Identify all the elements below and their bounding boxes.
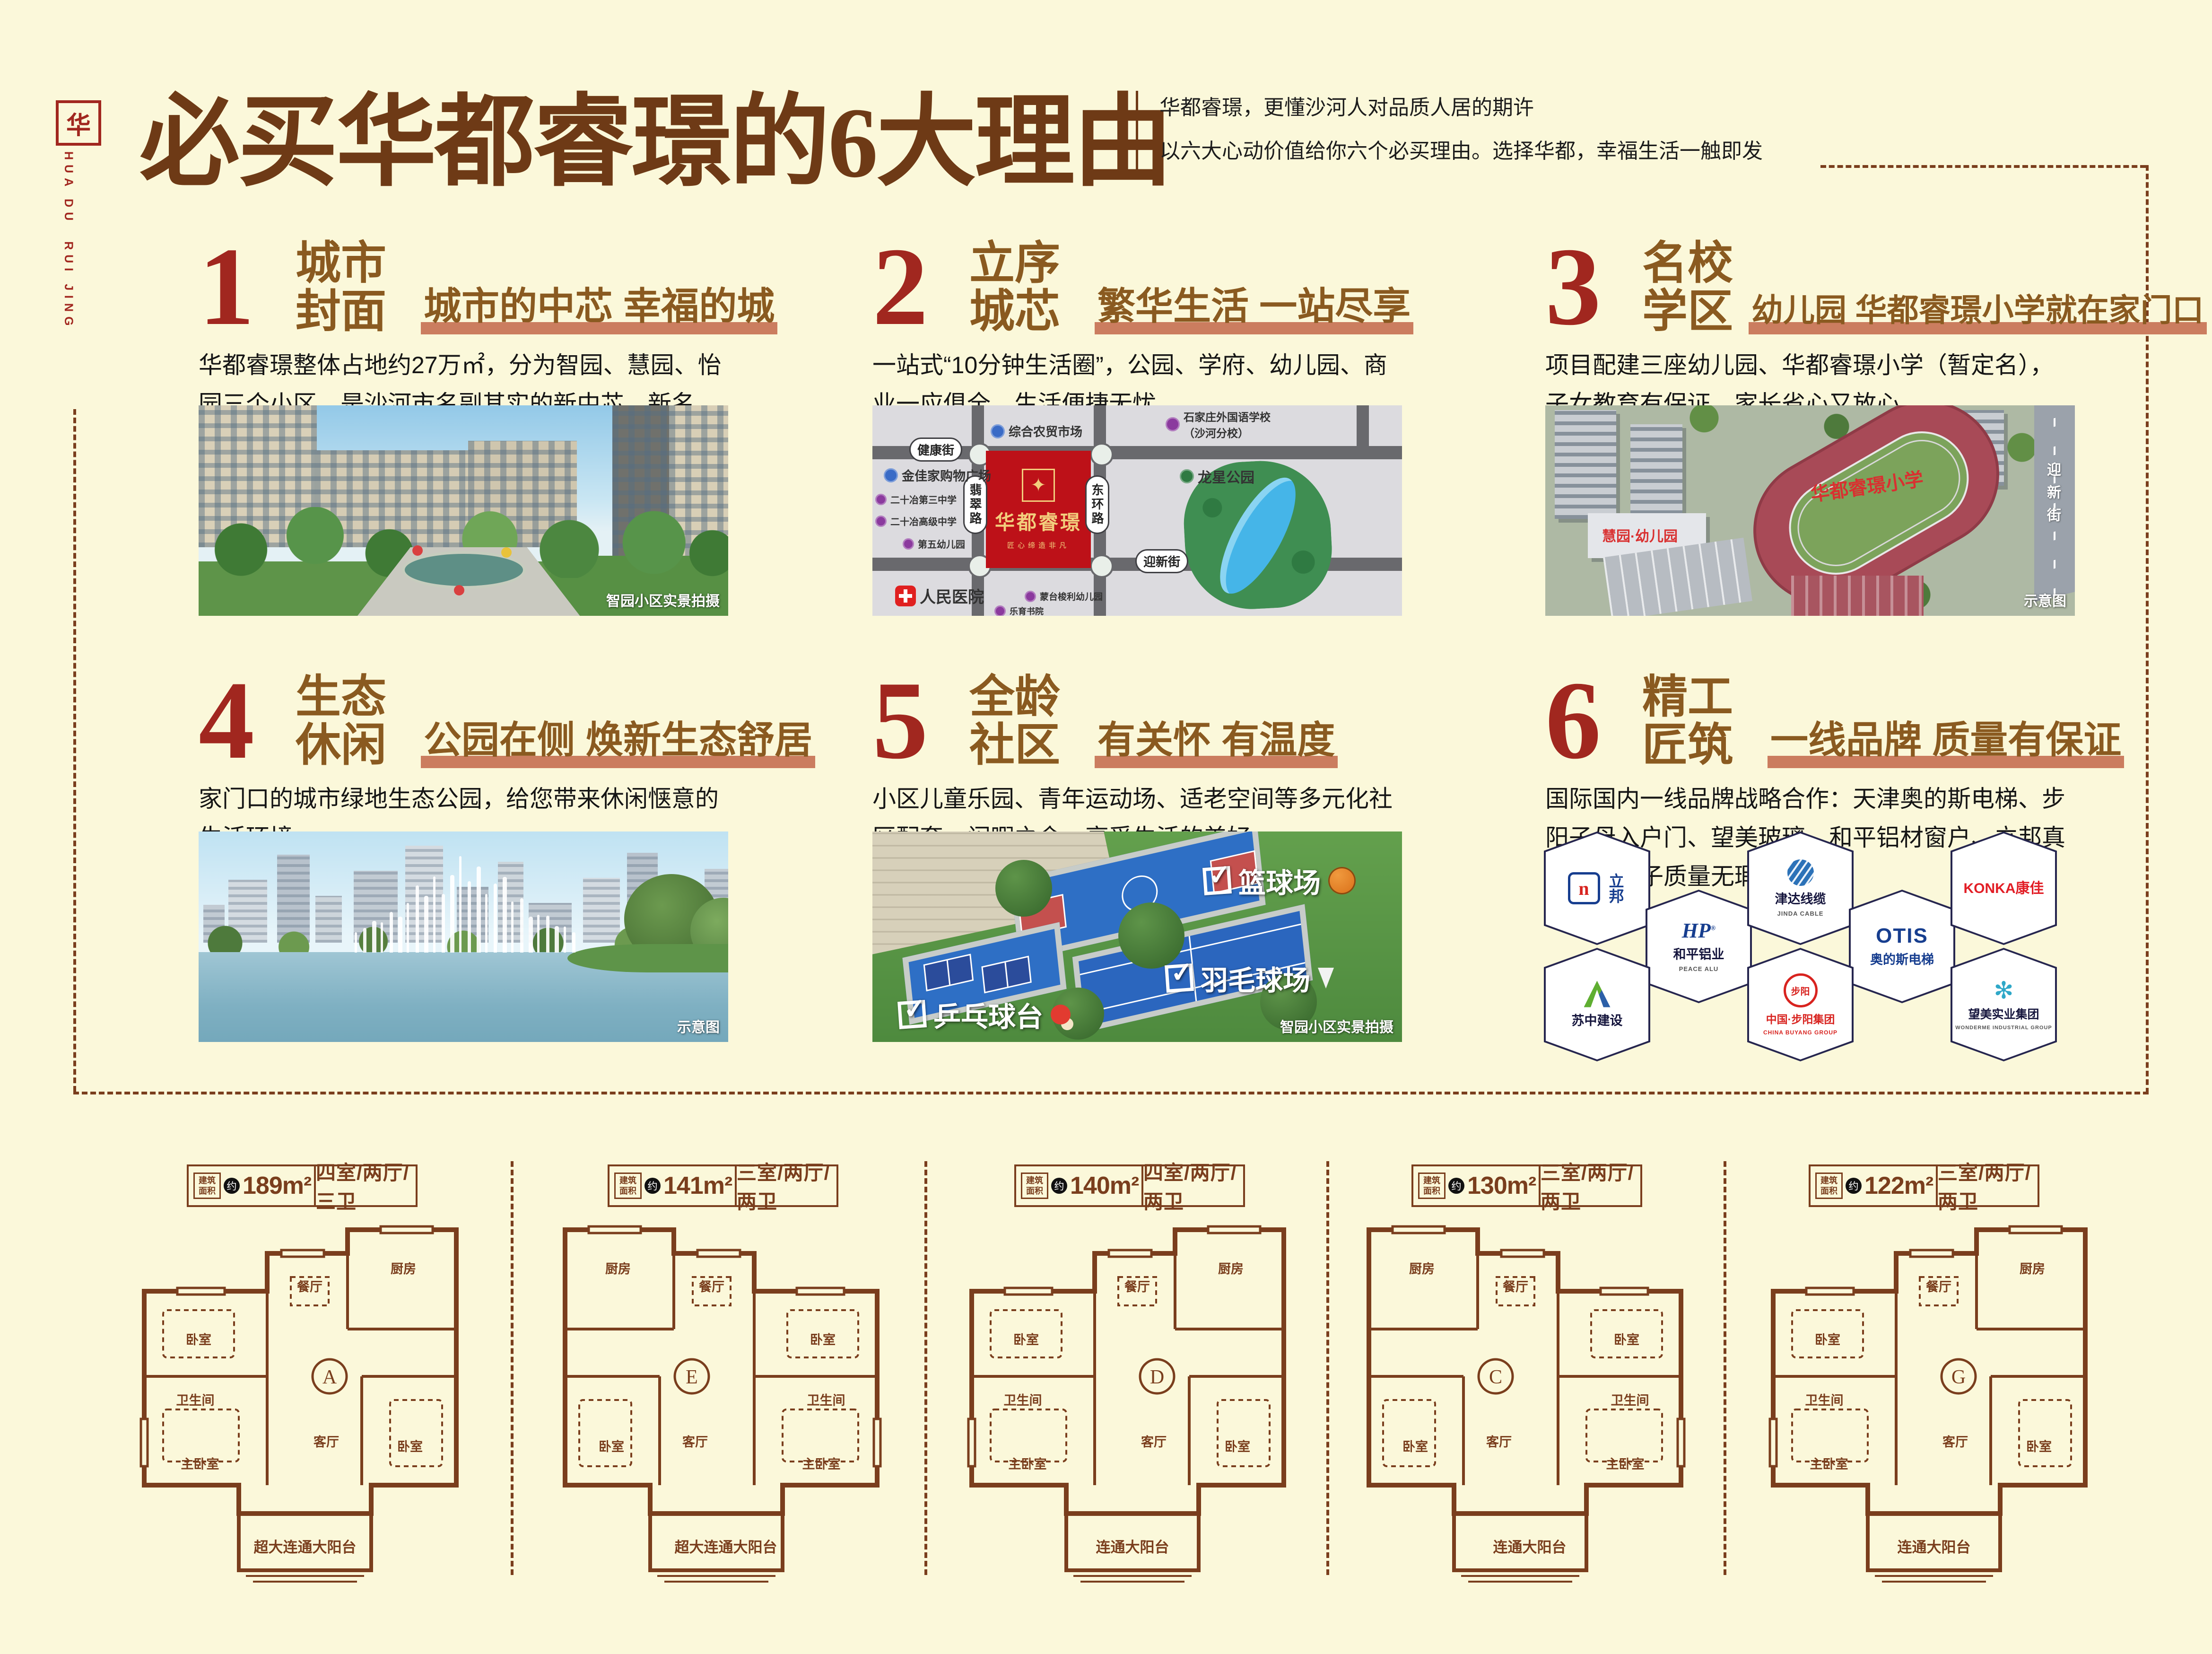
area-value: 130m² (1467, 1172, 1536, 1200)
plan-label-140: 建筑面积约140m² 四室/两厅/两卫 (1014, 1164, 1245, 1207)
photo-caption: 智园小区实景拍摄 (1280, 1015, 1393, 1036)
sports-courts-photo: 篮球场 羽毛球场 乒乓球台 智园小区实景拍摄 (872, 831, 1402, 1042)
plan-separator (924, 1161, 927, 1575)
svg-text:主卧室: 主卧室 (1810, 1457, 1848, 1471)
kindergarten-icon (1025, 591, 1036, 602)
svg-text:卫生间: 卫生间 (807, 1393, 845, 1408)
shuttlecock-icon (1318, 968, 1334, 989)
area-value: 122m² (1864, 1172, 1933, 1200)
kindergarten-label: 慧园·幼儿园 (1602, 525, 1678, 545)
flower (454, 585, 464, 595)
layout-value: 四室/两厅/两卫 (1143, 1166, 1243, 1205)
fountain-jet (424, 896, 428, 953)
svg-text:客厅: 客厅 (1486, 1435, 1512, 1449)
academy-icon (994, 605, 1006, 616)
render-caption: 示意图 (2024, 589, 2066, 610)
dashed-frame-top (1820, 165, 2146, 168)
tagline: 华都睿璟，更懂沙河人对品质人居的期许 以六大心动价值给你六个必买理由。选择华都，… (1159, 86, 1763, 173)
area-stamp: 建筑面积 (1815, 1173, 1843, 1199)
road-north (1357, 405, 1369, 448)
brand-peace-alu: HP® 和平铝业 PEACE ALU (1646, 890, 1752, 1003)
svg-text:卧室: 卧室 (1225, 1439, 1250, 1454)
paddle-icon (1051, 1005, 1071, 1024)
intersection (1090, 443, 1114, 466)
wonderme-logo-icon: ✻ (1994, 979, 2014, 1002)
otis-logo: OTIS (1876, 926, 1928, 946)
plan-separator (1326, 1161, 1329, 1575)
buyang-logo-icon: 步阳 (1784, 973, 1818, 1007)
poi-academy: 乐育书院 (994, 605, 1044, 616)
fountain-jet (355, 932, 357, 953)
road-name-label: 迎新街 (2042, 462, 2063, 530)
road-label-jiankang: 健康街 (909, 438, 962, 462)
school-icon (875, 494, 887, 505)
poi-middle-school-3: 二十冶第三中学 (875, 492, 957, 506)
tagline-line2: 以六大心动价值给你六个必买理由。选择华都，幸福生活一触即发 (1159, 130, 1763, 173)
checkbox-icon (1202, 866, 1232, 895)
peace-alu-logo-icon: HP® (1682, 920, 1716, 941)
floor-plan-A: A卧室餐厅厨房卫生间主卧室客厅卧室超大连通大阳台 (125, 1220, 475, 1599)
court-label-basketball: 篮球场 (1203, 861, 1356, 901)
layout-value: 三室/两厅/两卫 (1541, 1166, 1640, 1205)
svg-text:主卧室: 主卧室 (181, 1457, 219, 1471)
render-caption: 示意图 (677, 1015, 720, 1036)
svg-text:卫生间: 卫生间 (1004, 1393, 1042, 1408)
checkbox-icon (1165, 963, 1194, 993)
section-title: 名校 学区 (1642, 239, 1733, 336)
section-number: 5 (872, 669, 928, 772)
section-city-cover: 1 城市 封面 城市的中芯 幸福的城 华都睿璟整体占地约27万㎡，分为智园、慧园… (199, 220, 728, 462)
photo-caption: 智园小区实景拍摄 (606, 589, 720, 610)
plan-label-189: 建筑面积约189m² 四室/两厅/三卫 (187, 1164, 418, 1207)
svg-text:卫生间: 卫生间 (176, 1393, 215, 1408)
school-aerial-render: 华都睿璟小学 慧园·幼儿园 迎新街 示意图 (1545, 405, 2075, 616)
svg-text:卧室: 卧室 (599, 1439, 624, 1454)
section-subtitle: 一线品牌 质量有保证 (1768, 709, 2124, 768)
fountain-jet (555, 926, 559, 953)
section-craftsmanship: 6 精工 匠筑 一线品牌 质量有保证 国际国内一线品牌战略合作：天津奥的斯电梯、… (1545, 654, 2075, 896)
section-number: 3 (1545, 236, 1601, 338)
section-school-district: 3 名校 学区 幼儿园 华都睿璟小学就在家门口 项目配建三座幼儿园、华都睿璟小学… (1545, 220, 2075, 423)
poi-market: 综合农贸市场 (991, 422, 1082, 440)
section-subtitle: 公园在侧 焕新生态舒居 (421, 709, 815, 768)
svg-text:厨房: 厨房 (1409, 1262, 1435, 1276)
poster-page: 华 HUA DU RUI JING 必买华都睿璟的6大理由 华都睿璟，更懂沙河人… (0, 0, 2212, 1654)
approx-badge: 约 (1846, 1178, 1862, 1194)
dashed-frame-bottom (73, 1092, 2149, 1094)
fountain-jet (416, 885, 419, 953)
plan-separator (1724, 1161, 1726, 1575)
fountain-jet (572, 932, 575, 953)
floor-plan-D: D卧室餐厅厨房卫生间主卧室客厅卧室连通大阳台 (953, 1220, 1303, 1599)
fountain-jet (520, 898, 523, 953)
poi-park: 龙星公园 (1180, 466, 1254, 487)
svg-text:厨房: 厨房 (605, 1262, 631, 1276)
tree (995, 860, 1052, 917)
floor-plan-C: C卧室餐厅厨房卫生间主卧室客厅卧室连通大阳台 (1350, 1220, 1700, 1599)
svg-text:连通大阳台: 连通大阳台 (1898, 1539, 1971, 1556)
svg-text:厨房: 厨房 (1218, 1262, 1244, 1276)
plan-label-130: 建筑面积约130m² 三室/两厅/两卫 (1411, 1164, 1642, 1207)
fountain-jet (529, 917, 533, 953)
svg-text:餐厅: 餐厅 (1926, 1280, 1951, 1294)
plan-label-141: 建筑面积约141m² 三室/两厅/两卫 (608, 1164, 838, 1207)
fountain-jet (363, 928, 366, 953)
svg-text:餐厅: 餐厅 (1503, 1280, 1528, 1294)
section-subtitle: 繁华生活 一站尽享 (1095, 276, 1413, 334)
svg-text:卫生间: 卫生间 (1611, 1393, 1649, 1408)
svg-text:客厅: 客厅 (682, 1435, 708, 1449)
brand-otis: OTIS 奥的斯电梯 (1849, 890, 1955, 1003)
section-subtitle: 城市的中芯 幸福的城 (421, 276, 777, 334)
park-lake (1206, 467, 1310, 604)
svg-text:D: D (1150, 1366, 1164, 1388)
area-stamp: 建筑面积 (1021, 1173, 1048, 1199)
brand-buyang: 步阳 中国·步阳集团 CHINA BUYANG GROUP (1747, 948, 1854, 1061)
svg-text:卧室: 卧室 (2026, 1439, 2052, 1454)
suzhong-logo-icon (1584, 981, 1611, 1007)
section-title: 精工 匠筑 (1642, 673, 1733, 770)
layout-value: 三室/两厅/两卫 (1938, 1166, 2038, 1205)
brand-letters: HUA DU RUI JING (61, 151, 77, 331)
school-building (1791, 576, 1924, 616)
poi-senior-school: 二十冶高级中学 (875, 514, 957, 528)
svg-text:C: C (1489, 1366, 1502, 1388)
section-number: 6 (1545, 669, 1601, 772)
fountain-jet (537, 915, 540, 953)
fountain-jet (546, 916, 549, 953)
section-title: 全龄 社区 (969, 673, 1060, 770)
courtyard-photo: 智园小区实景拍摄 (199, 405, 728, 616)
floor-plan-E: E卧室餐厅厨房卫生间主卧室客厅卧室超大连通大阳台 (546, 1220, 896, 1599)
svg-text:客厅: 客厅 (1942, 1435, 1968, 1449)
section-subtitle: 幼儿园 华都睿璟小学就在家门口 (1749, 285, 2207, 334)
svg-text:卧室: 卧室 (1815, 1332, 1840, 1347)
fountain-jet (494, 884, 497, 953)
area-value: 189m² (243, 1172, 311, 1200)
section-subtitle: 有关怀 有温度 (1095, 709, 1338, 768)
brand-honeycomb: n 立邦 HP® 和平铝业 PEACE ALU 津达线缆 JINDA CABLE (1544, 831, 2076, 1064)
svg-text:卧室: 卧室 (1614, 1332, 1639, 1347)
park-icon (1180, 469, 1194, 483)
section-number: 1 (199, 236, 254, 338)
svg-text:E: E (686, 1366, 698, 1388)
fountain-jet (398, 917, 402, 953)
tower (1630, 424, 1682, 514)
poi-montessori: 蒙台梭利幼儿园 (1025, 590, 1103, 603)
svg-text:超大连通大阳台: 超大连通大阳台 (254, 1539, 357, 1556)
fountain-jet (442, 894, 445, 953)
svg-text:主卧室: 主卧室 (1606, 1457, 1645, 1471)
flower (501, 547, 512, 558)
school-icon (875, 516, 887, 527)
section-number: 2 (872, 236, 928, 338)
svg-text:厨房: 厨房 (391, 1262, 416, 1276)
section-location: 2 立序 城芯 繁华生活 一站尽享 一站式“10分钟生活圈”，公园、学府、幼儿园… (872, 220, 1402, 423)
svg-text:A: A (322, 1366, 337, 1388)
svg-text:餐厅: 餐厅 (1124, 1280, 1150, 1294)
layout-value: 四室/两厅/三卫 (316, 1166, 416, 1205)
poi-hospital: 人民医院 (895, 584, 984, 607)
layout-value: 三室/两厅/两卫 (737, 1166, 836, 1205)
fountain-jet (503, 877, 507, 953)
brand-konka: KONKA康佳 (1951, 831, 2057, 945)
section-ecology: 4 生态 休闲 公园在侧 焕新生态舒居 家门口的城市绿地生态公园，给您带来休闲惬… (199, 654, 728, 857)
brand-nippon: n 立邦 (1544, 831, 1650, 945)
project-emblem-icon: ✦ (1022, 469, 1055, 502)
title-divider (1136, 91, 1138, 177)
floor-plan-G: G卧室餐厅厨房卫生间主卧室客厅卧室连通大阳台 (1754, 1220, 2104, 1599)
hospital-icon (895, 586, 916, 606)
brand-wonderme: ✻ 望美实业集团 WONDERME INDUSTRIAL GROUP (1951, 948, 2057, 1061)
intersection (1090, 554, 1114, 578)
nippon-logo-icon: n (1568, 872, 1600, 904)
svg-text:餐厅: 餐厅 (297, 1280, 322, 1294)
road-label-yingxin: 迎新街 (1135, 549, 1188, 573)
svg-text:餐厅: 餐厅 (699, 1280, 724, 1294)
tagline-line1: 华都睿璟，更懂沙河人对品质人居的期许 (1159, 86, 1763, 130)
brand-jinda: 津达线缆 JINDA CABLE (1747, 831, 1854, 945)
fountain-jet (381, 922, 383, 953)
poi-kindergarten-5: 第五幼儿园 (903, 537, 965, 551)
area-stamp: 建筑面积 (193, 1173, 221, 1199)
page-title: 必买华都睿璟的6大理由 (139, 61, 1171, 206)
brand-suzhong: 苏中建设 (1544, 948, 1650, 1061)
approx-badge: 约 (1448, 1178, 1464, 1194)
flower (412, 545, 423, 556)
fountain-jet (511, 901, 514, 953)
fountain-jet (564, 927, 566, 953)
poi-foreign-school: 石家庄外国语学校（沙河分校） (1166, 408, 1271, 440)
fountain-jet (407, 903, 409, 953)
fountain-jet (477, 866, 481, 953)
area-value: 141m² (663, 1172, 732, 1200)
svg-text:卧室: 卧室 (810, 1332, 836, 1347)
mall-icon (884, 468, 898, 482)
approx-badge: 约 (644, 1178, 661, 1194)
pingpong-table (981, 956, 1032, 994)
location-map: ✦ 华都睿璟 匠心缔造非凡 健康街 翡翠路 东环路 迎新街 综合农贸市场 石家庄… (872, 405, 1402, 616)
area-stamp: 建筑面积 (1418, 1173, 1446, 1199)
road-label-donghuan: 东环路 (1085, 475, 1109, 534)
project-block: ✦ 华都睿璟 匠心缔造非凡 (986, 451, 1091, 568)
svg-text:G: G (1951, 1366, 1966, 1388)
dashed-frame-left (73, 409, 76, 1092)
section-title: 立序 城芯 (969, 239, 1060, 336)
market-icon (991, 424, 1005, 438)
svg-text:客厅: 客厅 (1141, 1435, 1167, 1449)
project-name: 华都睿璟 (995, 507, 1082, 535)
svg-text:卧室: 卧室 (1013, 1332, 1039, 1347)
section-title: 生态 休闲 (296, 673, 386, 770)
fountain-jet (390, 912, 393, 953)
svg-text:卧室: 卧室 (1402, 1439, 1428, 1454)
fountain-jet (372, 921, 376, 953)
svg-text:超大连通大阳台: 超大连通大阳台 (675, 1539, 777, 1556)
brand-seal-icon: 华 (56, 100, 101, 146)
svg-text:连通大阳台: 连通大阳台 (1096, 1539, 1169, 1556)
svg-text:主卧室: 主卧室 (802, 1457, 841, 1471)
plan-label-122: 建筑面积约122m² 三室/两厅/两卫 (1809, 1164, 2039, 1207)
jinda-logo-icon (1787, 859, 1814, 886)
court-label-badminton: 羽毛球场 (1166, 958, 1334, 998)
svg-text:卧室: 卧室 (397, 1439, 423, 1454)
section-number: 4 (199, 669, 254, 772)
fountain-jets (199, 860, 728, 953)
school-icon (1166, 417, 1180, 431)
area-stamp: 建筑面积 (614, 1173, 642, 1199)
project-slogan: 匠心缔造非凡 (1007, 540, 1070, 550)
court-label-pingpong: 乒乓球台 (898, 995, 1071, 1034)
park-lake-render: 示意图 (199, 831, 728, 1042)
fountain-jet (433, 876, 435, 953)
svg-text:卫生间: 卫生间 (1805, 1393, 1844, 1408)
checkbox-icon (897, 1000, 927, 1029)
fountain-jet (450, 875, 454, 953)
svg-text:连通大阳台: 连通大阳台 (1493, 1539, 1567, 1556)
poi-mall: 金佳家购物广场 (884, 466, 991, 484)
fountain-jet (459, 856, 462, 953)
pingpong-table (923, 954, 974, 991)
kindergarten-icon (903, 538, 914, 550)
tower (1555, 410, 1616, 519)
fountain-jet (485, 894, 488, 953)
svg-text:客厅: 客厅 (314, 1435, 339, 1449)
section-title: 城市 封面 (296, 239, 386, 336)
plan-separator (511, 1161, 514, 1575)
area-value: 140m² (1070, 1172, 1139, 1200)
section-community: 5 全龄 社区 有关怀 有温度 小区儿童乐园、青年运动场、适老空间等多元化社区配… (872, 654, 1402, 857)
fountain-jet (468, 881, 471, 953)
svg-text:卧室: 卧室 (186, 1332, 211, 1347)
svg-text:主卧室: 主卧室 (1009, 1457, 1047, 1471)
svg-text:厨房: 厨房 (2020, 1262, 2045, 1276)
approx-badge: 约 (1051, 1178, 1067, 1194)
approx-badge: 约 (224, 1178, 240, 1194)
basketball-icon (1328, 867, 1356, 894)
